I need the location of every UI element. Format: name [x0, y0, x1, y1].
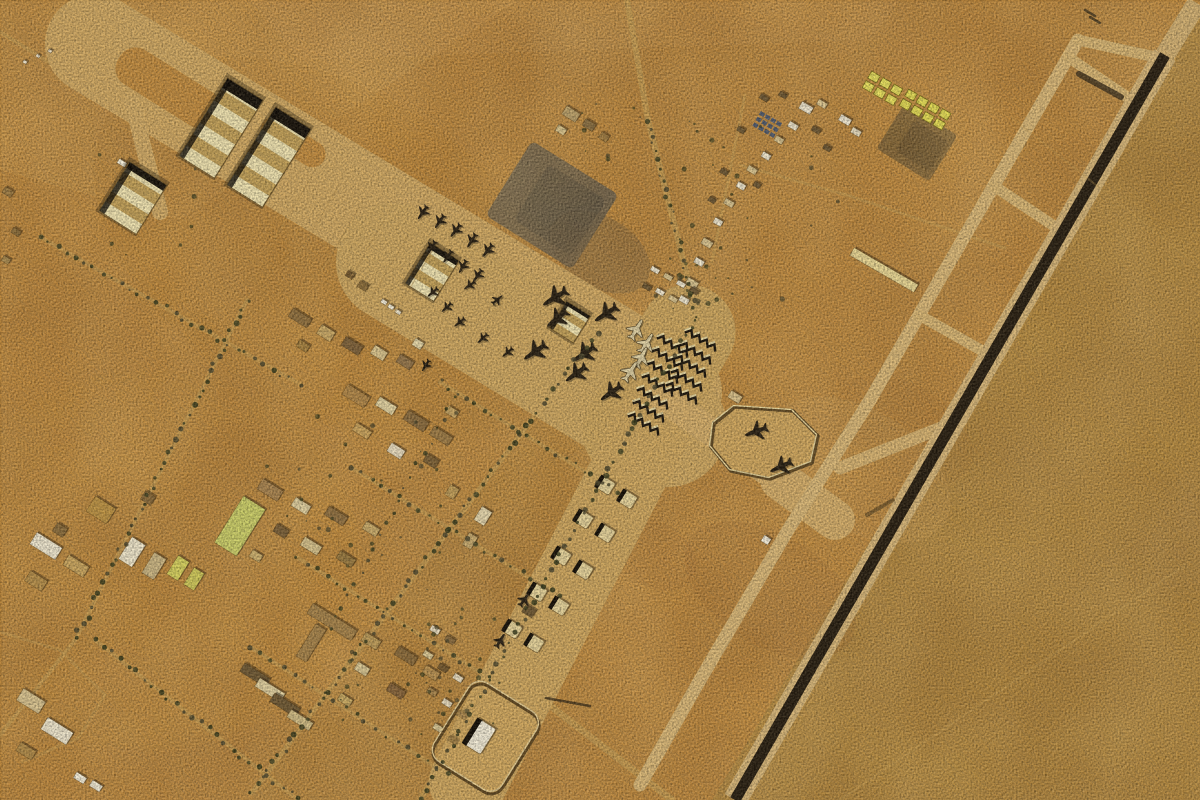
satellite-image: [0, 0, 1200, 800]
photo-grain: [0, 0, 1200, 800]
grain-light: [2, 2, 1200, 800]
airbase-satellite-view: [0, 0, 1200, 800]
